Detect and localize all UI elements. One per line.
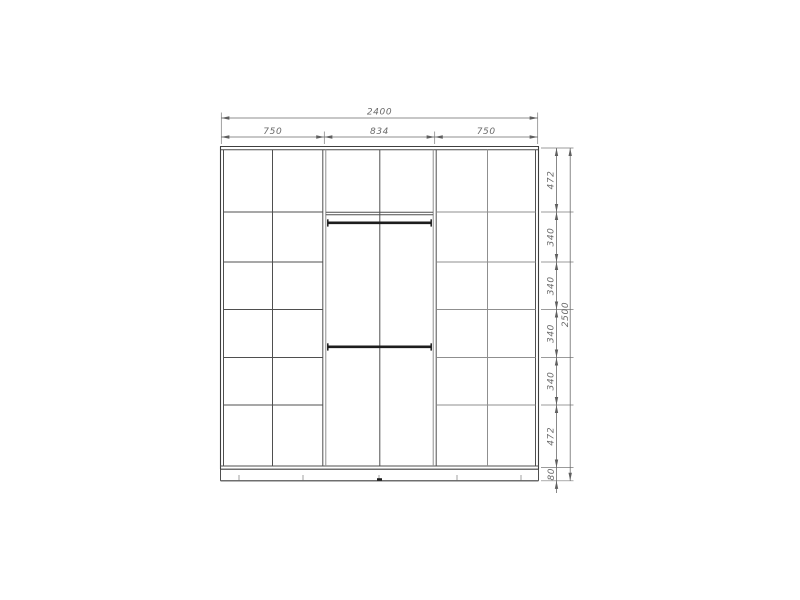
plinth — [221, 469, 539, 481]
dim-total-height: 2500 — [561, 302, 571, 327]
right-side-wall — [536, 147, 539, 470]
left-side-wall — [221, 147, 224, 470]
top-panel — [220, 147, 539, 150]
dim-row-6-height: 472 — [547, 427, 557, 446]
dim-row-3-height: 340 — [547, 276, 557, 295]
left-section-shelves — [224, 212, 323, 405]
dim-row-5-height: 340 — [547, 372, 557, 391]
dim-plinth-height: 80 — [547, 468, 557, 481]
wardrobe-technical-drawing: 2400 750 834 750 472 340 3 — [0, 0, 800, 600]
center-section-right-wall — [433, 150, 436, 466]
dim-row-4-height: 340 — [547, 324, 557, 343]
dimensions-right: 472 340 340 340 340 472 80 2500 — [541, 148, 574, 493]
dim-row-1-height: 472 — [547, 171, 557, 190]
bottom-panel — [220, 466, 539, 469]
right-section-shelves — [436, 212, 535, 405]
dim-row-2-height: 340 — [547, 228, 557, 247]
dim-total-width: 2400 — [367, 108, 392, 118]
center-section-left-wall — [323, 150, 326, 466]
drawing-canvas: 2400 750 834 750 472 340 3 — [0, 0, 800, 600]
dim-center-section-width: 834 — [370, 127, 389, 137]
cabinet-structure — [220, 147, 539, 481]
dim-left-section-width: 750 — [263, 127, 282, 137]
dimensions-top: 2400 750 834 750 — [221, 108, 537, 145]
dim-right-section-width: 750 — [477, 127, 496, 137]
